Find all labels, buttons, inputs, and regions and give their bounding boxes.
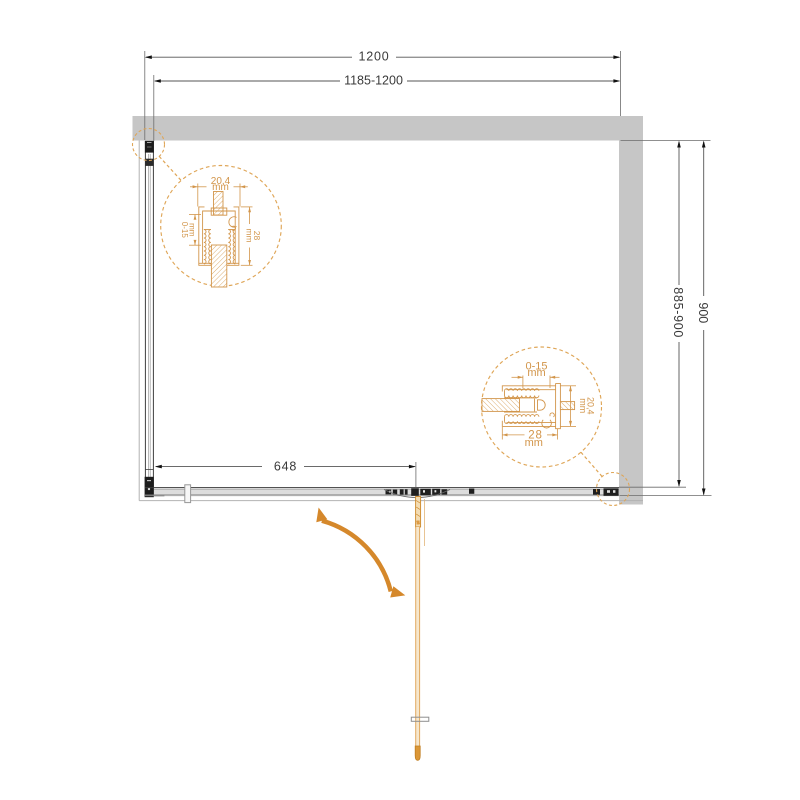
svg-text:mm: mm: [578, 398, 588, 413]
svg-text:885-900: 885-900: [671, 287, 685, 338]
svg-text:mm: mm: [525, 437, 543, 449]
svg-text:900: 900: [696, 302, 710, 323]
svg-text:mm: mm: [212, 182, 229, 193]
svg-text:1185-1200: 1185-1200: [344, 74, 403, 88]
svg-text:1200: 1200: [358, 50, 389, 64]
svg-text:mm: mm: [527, 367, 545, 379]
svg-text:mm: mm: [187, 223, 196, 237]
svg-text:mm: mm: [245, 228, 255, 242]
svg-text:648: 648: [274, 460, 297, 474]
